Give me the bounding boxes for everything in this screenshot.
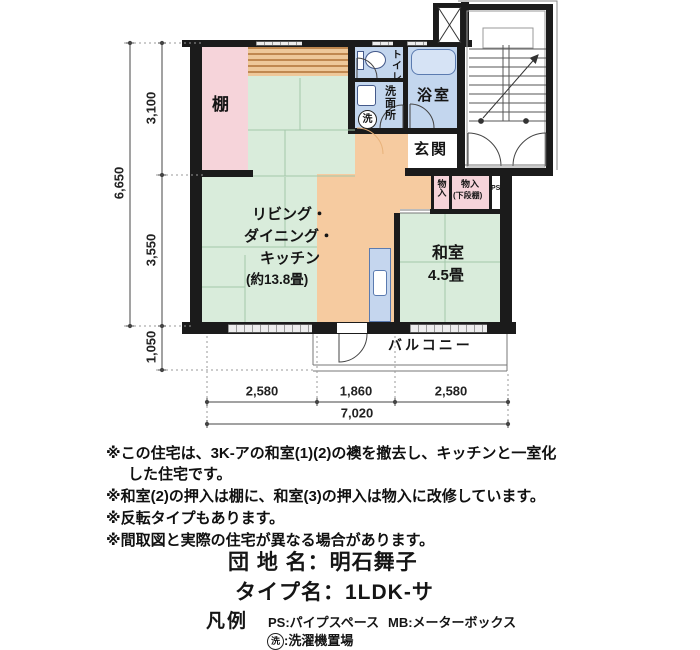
- label-ldk-1: リビング・: [252, 207, 327, 223]
- label-ps: PS: [491, 185, 500, 192]
- dim-bottom-left: 2,580: [246, 384, 279, 399]
- dim-bottom-center: 1,860: [340, 384, 373, 399]
- legend-heading: 凡例: [206, 612, 248, 632]
- label-closet-small: 物入: [436, 179, 445, 207]
- legend-laundry-symbol: 洗: [271, 636, 280, 646]
- legend-mb: MB:メーターボックス: [388, 616, 516, 630]
- legend-laundry-text: :洗濯機置場: [284, 634, 353, 648]
- floorplan-page: 洗: [0, 0, 700, 650]
- note-line-1: ※この住宅は、3K-アの和室(1)(2)の襖を撤去し、キッチンと一室化: [106, 442, 556, 463]
- type-name: タイプ名：1LDK-サ: [235, 582, 434, 604]
- label-ldk-size: (約13.8畳): [246, 273, 308, 287]
- stair-direction-arrow: [479, 55, 538, 123]
- label-closet-wide-2: (下段棚): [453, 192, 482, 200]
- note-line-3: ※和室(2)の押入は棚に、和室(3)の押入は物入に改修しています。: [106, 485, 545, 506]
- mb-shaft-x: [438, 7, 461, 43]
- label-ldk-2: ダイニング・: [244, 229, 334, 245]
- label-ldk-3: キッチン: [260, 251, 320, 267]
- dim-total-height: 6,650: [112, 167, 127, 200]
- dim-upper-height: 3,100: [144, 92, 159, 125]
- label-washitsu: 和室: [432, 246, 464, 263]
- legend-ps: PS:パイプスペース: [268, 616, 379, 630]
- label-shelf: 棚: [212, 96, 229, 114]
- note-line-4: ※反転タイプもあります。: [106, 507, 284, 528]
- note-line-5: ※間取図と実際の住宅が異なる場合があります。: [106, 529, 434, 550]
- label-balcony: バルコニー: [388, 338, 473, 353]
- label-bath: 浴室: [417, 88, 451, 104]
- note-line-2: した住宅です。: [128, 463, 232, 484]
- label-entrance: 玄関: [414, 142, 448, 158]
- estate-name: 団 地 名：明石舞子: [228, 552, 418, 574]
- label-washroom: 洗面所: [383, 85, 395, 129]
- label-washitsu-size: 4.5畳: [428, 268, 464, 284]
- dim-balcony-depth: 1,050: [144, 331, 159, 364]
- label-closet-wide-1: 物入: [461, 180, 479, 189]
- dim-bottom-right: 2,580: [435, 384, 468, 399]
- legend-laundry-circle: 洗: [267, 633, 284, 650]
- dim-total-width: 7,020: [341, 406, 374, 421]
- label-toilet: トイレ: [389, 49, 400, 79]
- dim-middle-height: 3,550: [144, 234, 159, 267]
